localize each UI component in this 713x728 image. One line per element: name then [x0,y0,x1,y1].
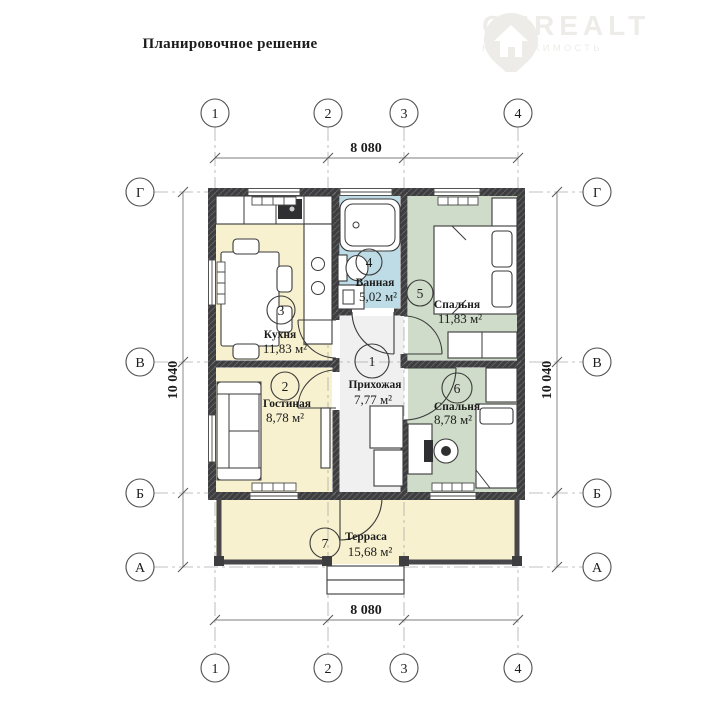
svg-text:3: 3 [278,303,285,318]
svg-text:2: 2 [282,379,289,394]
svg-text:4: 4 [366,255,373,270]
svg-text:Спальня: Спальня [434,299,480,311]
svg-text:А: А [135,561,146,576]
hall-wardrobe [374,450,403,486]
entry-step [327,566,404,580]
svg-text:1: 1 [212,662,219,677]
pillow [480,408,513,424]
svg-text:А: А [592,561,603,576]
svg-text:7: 7 [322,536,329,551]
chair [233,344,259,359]
svg-text:4: 4 [515,107,522,122]
terrace-post [512,556,522,566]
desk-chair-seat [441,446,451,456]
svg-text:Ванная: Ванная [356,277,395,289]
svg-text:Прихожая: Прихожая [348,379,401,391]
svg-text:Б: Б [593,487,601,502]
svg-text:3: 3 [401,662,408,677]
chair [233,239,259,254]
chair [277,266,292,292]
svg-text:Г: Г [136,186,144,201]
floor-plan-sheet: Планировочное решение ONREALT НЕДВИЖИМОС… [0,0,713,728]
svg-text:2: 2 [325,662,332,677]
kitchen-counter-right [304,224,332,344]
svg-text:Г: Г [593,186,601,201]
axis-column-markers-bottom: 1 2 3 4 [201,654,532,682]
svg-text:Терраса: Терраса [345,531,387,543]
svg-text:11,83 м²: 11,83 м² [263,341,307,356]
svg-text:3: 3 [401,107,408,122]
svg-text:5: 5 [417,286,424,301]
svg-text:В: В [592,356,601,371]
svg-text:Гостиная: Гостиная [263,398,311,410]
terrace-post [214,556,224,566]
pillow [492,231,512,267]
bathtub [340,199,400,251]
dimension-width-top: 8 080 [350,141,382,156]
dimension-width-bottom: 8 080 [350,603,382,618]
svg-text:1: 1 [369,354,376,369]
tv-stand [321,408,330,468]
axis-column-markers-top: 1 2 3 4 [201,99,532,127]
svg-text:15,68 м²: 15,68 м² [348,544,393,559]
svg-text:11,83 м²: 11,83 м² [438,311,482,326]
hall-wardrobe [370,406,403,448]
svg-text:Б: Б [136,487,144,502]
pillow [492,271,512,307]
floor-plan-drawing: 8 080 8 080 10 040 10 040 [0,0,713,728]
svg-text:4: 4 [515,662,522,677]
bedroom6-wardrobe [486,368,517,402]
svg-text:1: 1 [212,107,219,122]
axis-row-markers-right: Г В Б А [583,178,611,581]
desk-monitor [424,440,433,462]
kitchen-faucet [290,207,295,212]
svg-text:7,77 м²: 7,77 м² [354,392,392,407]
terrace-post [399,556,409,566]
svg-text:8,78 м²: 8,78 м² [434,412,472,427]
svg-text:6: 6 [454,381,461,396]
dimension-height-right: 10 040 [540,361,555,400]
svg-text:Кухня: Кухня [264,329,296,341]
svg-text:В: В [135,356,144,371]
svg-text:5,02 м²: 5,02 м² [359,289,397,304]
dimension-height-left: 10 040 [166,361,181,400]
entry-step [327,580,404,594]
svg-text:8,78 м²: 8,78 м² [266,410,304,425]
svg-text:2: 2 [325,107,332,122]
axis-row-markers-left: Г В Б А [126,178,154,581]
